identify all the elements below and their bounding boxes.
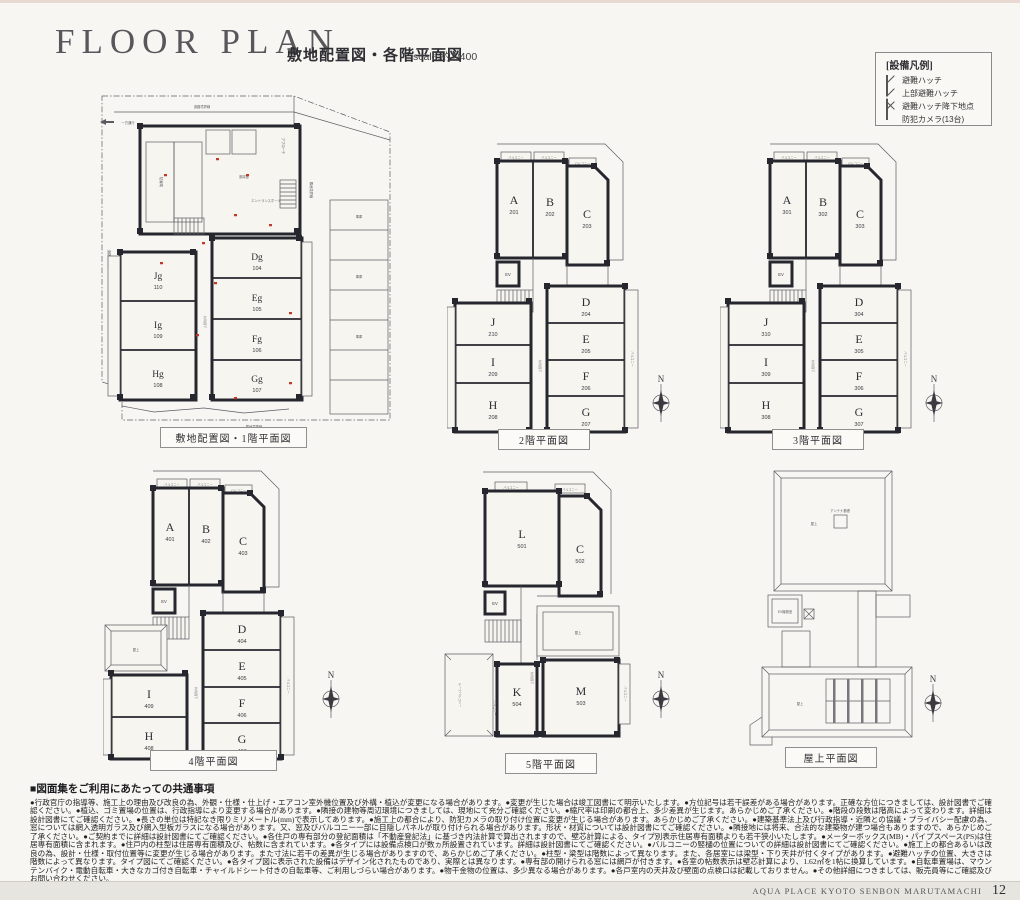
room-label: F — [583, 369, 590, 383]
room-label: E — [855, 332, 862, 346]
legend-title: [設備凡例] — [886, 57, 991, 72]
balcony-label: バルコニー — [814, 156, 829, 160]
legend-item: 避難ハッチ降下地点 — [886, 100, 991, 113]
room-label: B — [202, 522, 210, 536]
floor-plan-4f: バルコニー バルコニー バルコニー A 401 B 402 C 403 EV 屋… — [103, 467, 333, 770]
room-label: H — [145, 729, 154, 743]
equipment-legend: [設備凡例] 避難ハッチ 上部避難ハッチ 避難ハッチ降下地点 防犯カメラ(13台… — [875, 52, 992, 126]
room-label: B — [546, 195, 554, 209]
room-label: C — [856, 207, 864, 221]
notes-body: ●行政官庁の指導等、施工上の理由及び改良の為、外観・仕様・仕上げ・エアコン室外機… — [30, 799, 992, 884]
room-label: A — [510, 193, 519, 207]
svg-text:N: N — [658, 374, 665, 384]
room-number: 503 — [576, 701, 585, 707]
bike-parking-label: 駐輪場 — [159, 177, 164, 188]
balcony-label: バルコニー — [197, 483, 212, 487]
elevator-label: EV — [161, 599, 167, 604]
balcony-label: バルコニー — [508, 156, 523, 160]
room-number: 308 — [761, 415, 770, 421]
scale-note: scale:約1/400 — [413, 49, 477, 64]
svg-text:N: N — [328, 670, 335, 680]
room-label: G — [855, 405, 864, 419]
floor-plan-1f-drawing: 道路境界線 道路境界線 隣地境界線 隣地境界線 一方通行 駐輪場 風除室 エント… — [84, 82, 402, 434]
legend-item: 避難ハッチ — [886, 74, 991, 87]
caption-5f: 5階平面図 — [505, 753, 597, 774]
room-label: C — [583, 207, 591, 221]
room-label: Ig — [154, 321, 162, 331]
caption-3f: 3階平面図 — [772, 429, 864, 450]
page-number: 12 — [992, 883, 1006, 899]
room-number: 404 — [237, 639, 246, 645]
caption-2f: 2階平面図 — [498, 429, 590, 450]
room-number: 403 — [238, 551, 247, 557]
ev-machine-room-label: EV機械室 — [778, 609, 793, 614]
room-label: E — [582, 332, 589, 346]
room-label: Gg — [251, 375, 263, 385]
room-number: 202 — [545, 212, 554, 218]
room-label: Dg — [251, 253, 263, 263]
garage-label: 車庫 — [356, 214, 363, 219]
corridor-label: 共用廊下 — [194, 687, 199, 699]
floor-plan-3f-drawing: バルコニー バルコニー バルコニー A 301 B 302 C 303 EV バ… — [720, 140, 950, 434]
adjacent-boundary-label: 隣地境界線 — [309, 182, 314, 199]
room-label: D — [238, 622, 247, 636]
room-number: 110 — [154, 285, 163, 291]
room-number: 502 — [575, 559, 584, 565]
corridor-label: 共用廊下 — [530, 672, 535, 684]
room-number: 205 — [581, 349, 590, 355]
caption-roof: 屋上平面図 — [785, 747, 877, 768]
room-number: 204 — [581, 312, 590, 318]
north-compass: N — [646, 668, 676, 722]
balcony-label: バルコニー — [624, 686, 628, 701]
floor-plan-2f-drawing: バルコニー バルコニー バルコニー A 201 B 202 C 203 EV バ… — [447, 140, 677, 434]
north-compass: N — [919, 372, 949, 426]
room-label: H — [762, 398, 771, 412]
room-label: A — [783, 193, 792, 207]
rooftop-label: 屋上 — [797, 701, 804, 706]
balcony-label: バルコニー — [781, 156, 796, 160]
corridor-label: 共用廊下 — [203, 316, 208, 328]
room-number: 208 — [488, 415, 497, 421]
entrance-hall-label: エントランスホール — [251, 198, 281, 203]
balcony-label: バルコニー — [493, 700, 497, 715]
room-number: 303 — [855, 224, 864, 230]
svg-text:N: N — [931, 374, 938, 384]
legend-item: 上部避難ハッチ — [886, 87, 991, 100]
elevator-label: EV — [778, 272, 784, 277]
room-label: E — [238, 659, 245, 673]
floor-plan-2f: バルコニー バルコニー バルコニー A 201 B 202 C 203 EV バ… — [447, 140, 677, 439]
room-number: 105 — [252, 307, 261, 313]
room-label: M — [576, 684, 587, 698]
room-number: 405 — [237, 676, 246, 682]
balcony-label: バルコニー — [164, 483, 179, 487]
elevator-label: EV — [505, 272, 511, 277]
corridor-label: 共用廊下 — [811, 360, 816, 372]
room-number: 109 — [153, 334, 162, 340]
one-way-label: 一方通行 — [121, 120, 135, 125]
rooftop-label: 屋上 — [811, 521, 818, 526]
room-label: B — [819, 195, 827, 209]
room-number: 108 — [153, 383, 162, 389]
room-label: Hg — [152, 370, 164, 380]
road-boundary-label: 道路境界線 — [194, 104, 211, 109]
common-notes: ■図面集をご利用にあたっての共通事項 ●行政官庁の指導等、施工上の理由及び改良の… — [30, 781, 992, 884]
antenna-base-label: アンテナ基礎 — [830, 508, 850, 513]
notes-heading: ■図面集をご利用にあたっての共通事項 — [30, 781, 992, 796]
room-number: 309 — [761, 372, 770, 378]
room-label: I — [147, 687, 151, 701]
room-label: C — [576, 542, 584, 556]
room-number: 310 — [761, 332, 770, 338]
elevator-label: EV — [492, 601, 498, 606]
roof-balcony-label: ルーフバルコニー — [458, 683, 463, 708]
balcony-label: バルコニー — [541, 156, 556, 160]
rooftop-area-label: 屋上 — [575, 630, 582, 635]
balcony-label: バルコニー — [287, 678, 291, 693]
room-number: 307 — [854, 422, 863, 428]
room-number: 409 — [144, 704, 153, 710]
room-label: D — [582, 295, 591, 309]
north-compass: N — [646, 372, 676, 426]
room-label: K — [513, 685, 522, 699]
floor-plan-4f-drawing: バルコニー バルコニー バルコニー A 401 B 402 C 403 EV 屋… — [103, 467, 333, 765]
room-label: Fg — [252, 335, 262, 345]
room-number: 302 — [818, 212, 827, 218]
room-label: Eg — [252, 294, 263, 304]
legend-item: 防犯カメラ(13台) — [886, 113, 991, 126]
floor-plan-roof: 屋上 アンテナ基礎 EV機械室 屋上 — [742, 463, 977, 780]
svg-text:N: N — [658, 670, 665, 680]
room-number: 206 — [581, 386, 590, 392]
floor-plan-5f-drawing: バルコニー バルコニー L 501 C 502 EV 屋上 K 504 M 50… — [437, 468, 672, 768]
balcony-label: バルコニー — [904, 351, 908, 366]
room-number: 306 — [854, 386, 863, 392]
room-label: I — [491, 355, 495, 369]
room-label: J — [491, 315, 496, 329]
room-label: J — [764, 315, 769, 329]
caption-4f: 4階平面図 — [150, 750, 277, 771]
room-label: Jg — [154, 272, 163, 282]
room-label: C — [239, 534, 247, 548]
floor-plan-1f: 道路境界線 道路境界線 隣地境界線 隣地境界線 一方通行 駐輪場 風除室 エント… — [84, 82, 402, 439]
room-number: 304 — [854, 312, 863, 318]
rooftop-terrace-label: 屋上 — [133, 647, 140, 652]
room-number: 501 — [517, 544, 526, 550]
footer-project-name: AQUA PLACE KYOTO SENBON MARUTAMACHI — [752, 886, 982, 896]
room-number: 201 — [509, 210, 518, 216]
floor-plan-roof-drawing: 屋上 アンテナ基礎 EV機械室 屋上 — [742, 463, 977, 775]
room-number: 107 — [252, 388, 261, 394]
floor-plan-3f: バルコニー バルコニー バルコニー A 301 B 302 C 303 EV バ… — [720, 140, 950, 439]
room-label: F — [239, 696, 246, 710]
room-number: 406 — [237, 713, 246, 719]
garage-label: 車庫 — [356, 274, 363, 279]
room-number: 104 — [252, 266, 261, 272]
balcony-label: バルコニー — [562, 488, 577, 492]
upper-escape-hatch-icon — [886, 89, 895, 98]
floor-plan-5f: バルコニー バルコニー L 501 C 502 EV 屋上 K 504 M 50… — [437, 468, 672, 773]
room-label: I — [764, 355, 768, 369]
room-number: 210 — [488, 332, 497, 338]
room-label: F — [856, 369, 863, 383]
balcony-label: バルコニー — [631, 351, 635, 366]
hatch-landing-icon — [886, 102, 895, 111]
room-label: L — [518, 527, 525, 541]
room-number: 401 — [165, 537, 174, 543]
svg-text:N: N — [930, 674, 937, 684]
garage-label: 車庫 — [356, 334, 363, 339]
room-number: 209 — [488, 372, 497, 378]
corridor-label: 共用廊下 — [538, 360, 543, 372]
security-camera-icon — [886, 115, 895, 124]
room-label: H — [489, 398, 498, 412]
hatch-landing-icon — [804, 609, 814, 619]
north-compass: N — [918, 672, 948, 726]
room-number: 504 — [512, 702, 521, 708]
room-number: 402 — [201, 539, 210, 545]
footer-bar: AQUA PLACE KYOTO SENBON MARUTAMACHI 12 — [0, 881, 1020, 900]
room-label: D — [855, 295, 864, 309]
caption-1f: 敷地配置図・1階平面図 — [160, 427, 307, 448]
room-label: A — [166, 520, 175, 534]
room-number: 106 — [252, 348, 261, 354]
room-label: G — [582, 405, 591, 419]
room-number: 203 — [582, 224, 591, 230]
room-label: G — [238, 732, 247, 746]
room-number: 207 — [581, 422, 590, 428]
approach-label: アプローチ — [281, 138, 286, 154]
escape-hatch-icon — [886, 76, 895, 85]
room-number: 305 — [854, 349, 863, 355]
balcony-label: バルコニー — [503, 486, 518, 490]
brochure-page: FLOOR PLAN 敷地配置図・各階平面図 scale:約1/400 [設備凡… — [0, 0, 1020, 900]
room-number: 301 — [782, 210, 791, 216]
north-compass: N — [316, 668, 346, 722]
